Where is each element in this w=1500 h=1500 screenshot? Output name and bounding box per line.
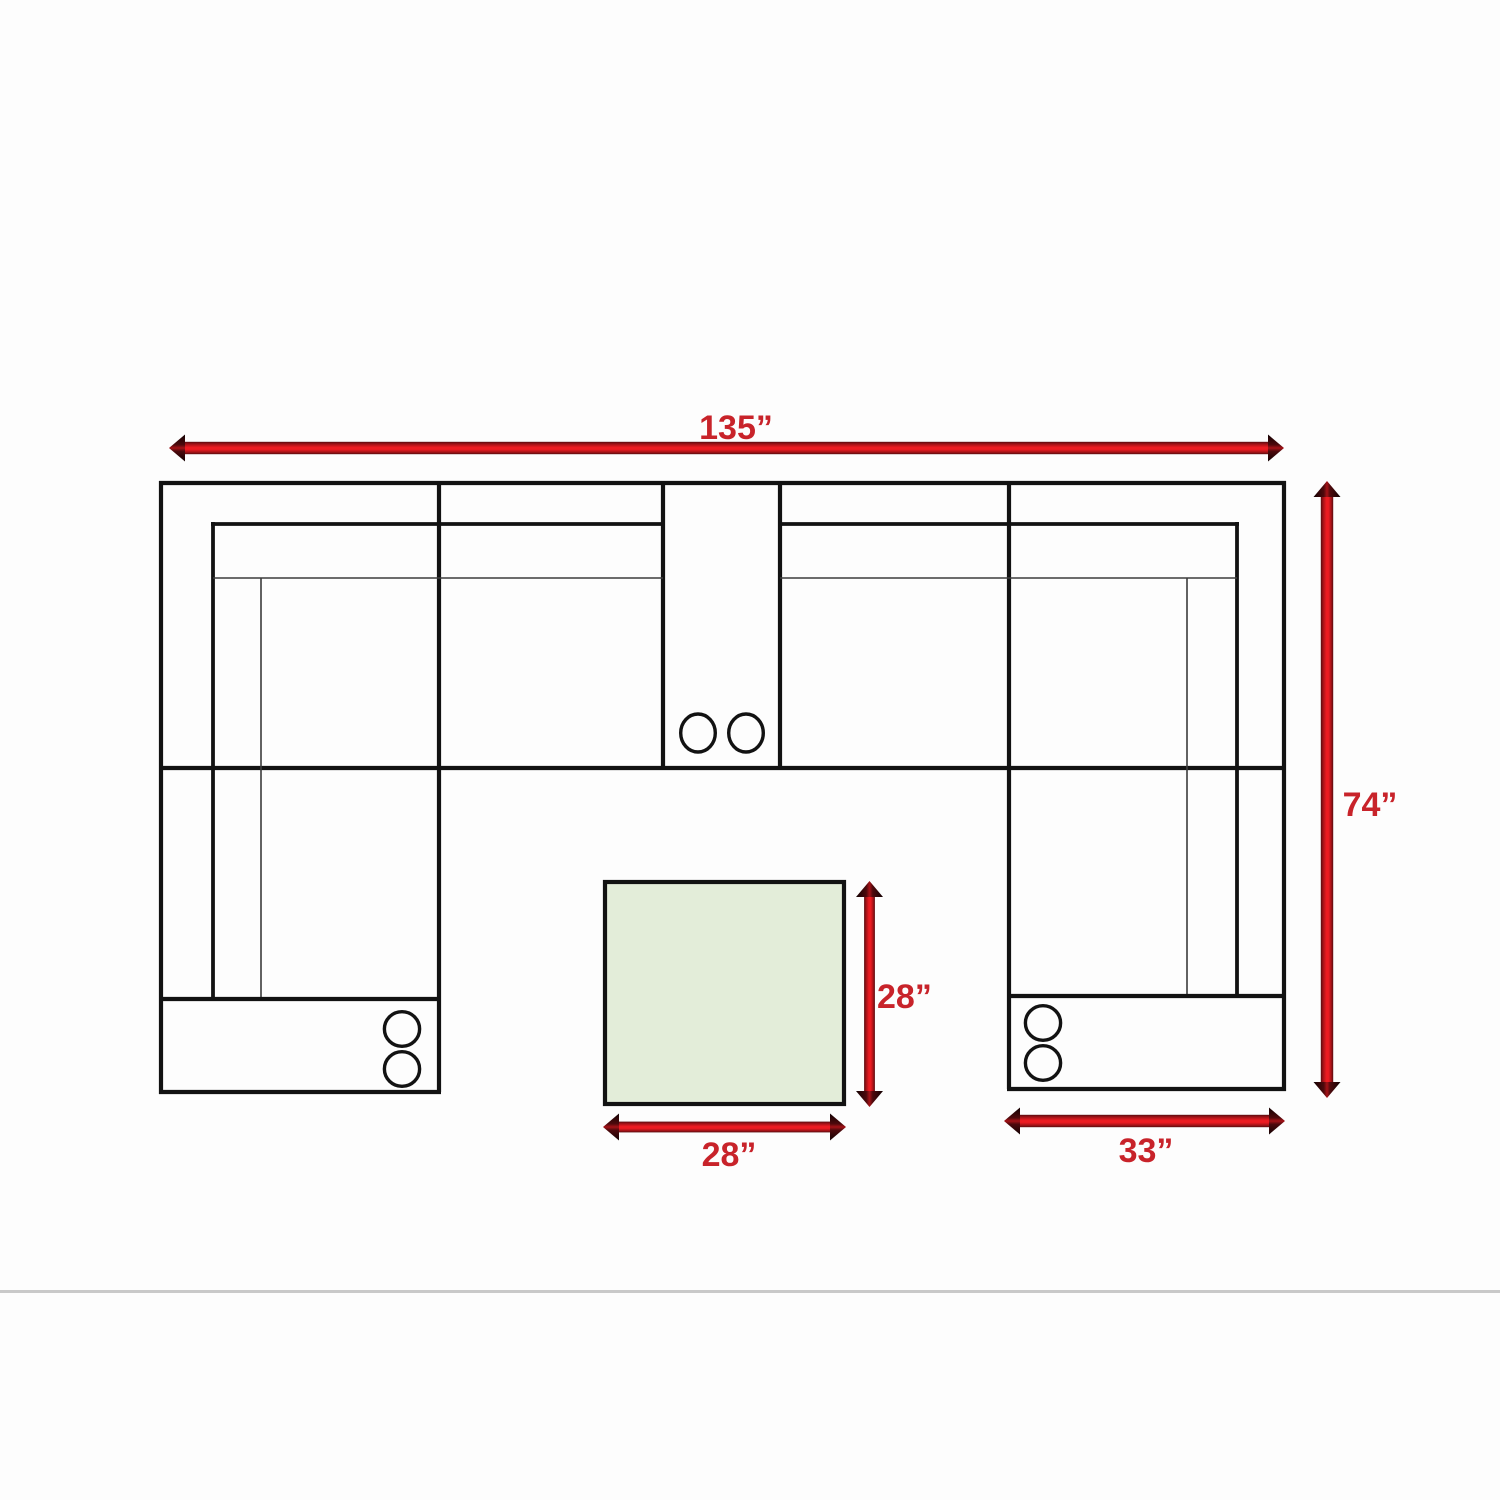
svg-text:28”: 28” xyxy=(702,1136,757,1174)
svg-text:28”: 28” xyxy=(877,978,932,1016)
svg-text:33”: 33” xyxy=(1119,1132,1174,1170)
svg-text:135”: 135” xyxy=(699,409,773,447)
svg-text:74”: 74” xyxy=(1343,786,1398,824)
